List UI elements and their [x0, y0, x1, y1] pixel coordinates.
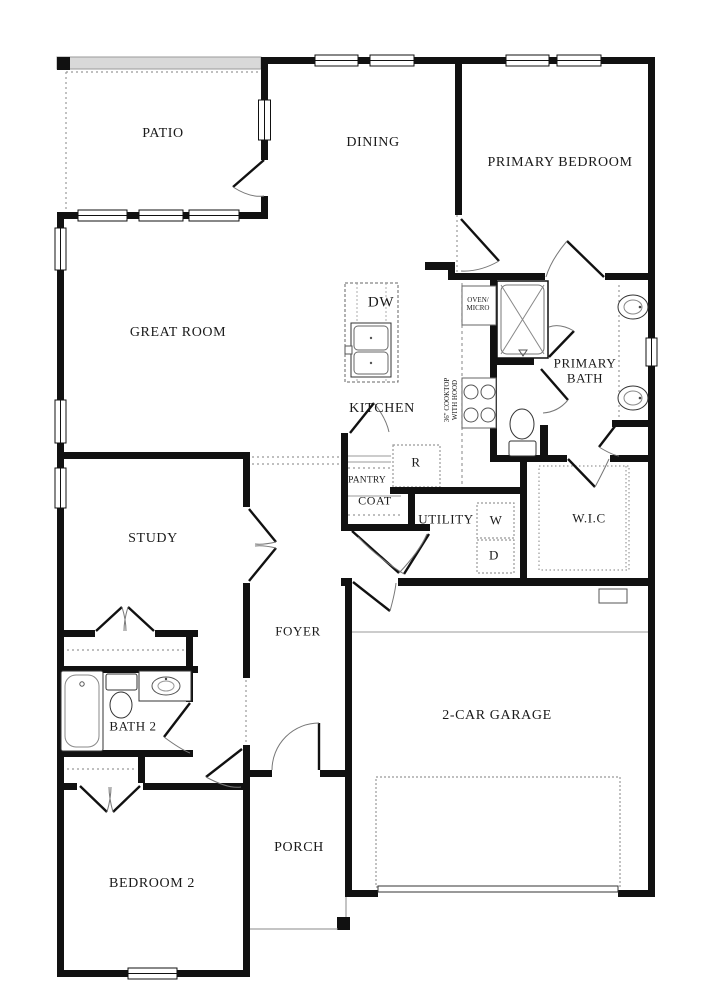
bath2-toilet: [106, 674, 137, 718]
patio-screen-band: [57, 57, 261, 70]
water-heater: [599, 589, 627, 603]
appliance-label-refrigerator: R: [411, 456, 420, 471]
appliance-label-dryer: D: [489, 549, 499, 564]
walls: [57, 57, 655, 977]
room-label-garage: 2-CAR GARAGE: [442, 708, 551, 724]
floor-plan: PATIO DINING PRIMARY BEDROOM GREAT ROOM …: [0, 0, 705, 1006]
shower: [497, 281, 548, 358]
room-label-coat: COAT: [358, 494, 392, 507]
appliance-label-oven-micro: OVEN/ MICRO: [467, 297, 490, 313]
room-label-porch: PORCH: [274, 840, 324, 856]
appliance-label-washer: W: [490, 514, 503, 529]
room-label-primary-bath: PRIMARY BATH: [554, 356, 617, 385]
room-label-utility: UTILITY: [418, 513, 473, 528]
garage-door: [378, 886, 618, 892]
bath2-vanity: [139, 671, 191, 701]
primary-toilet: [509, 409, 536, 456]
appliance-label-cooktop-note: 36" COOKTOP WITH HOOD: [444, 378, 460, 423]
appliance-label-dishwasher: DW: [368, 295, 394, 312]
room-label-bedroom-2: BEDROOM 2: [109, 876, 195, 892]
room-label-great-room: GREAT ROOM: [130, 325, 226, 341]
room-label-patio: PATIO: [142, 126, 183, 142]
room-label-foyer: FOYER: [275, 625, 321, 640]
room-label-study: STUDY: [128, 531, 178, 547]
room-label-pantry: PANTRY: [348, 476, 386, 487]
floorplan-drawing: [0, 0, 705, 1006]
room-label-dining: DINING: [346, 135, 399, 151]
room-label-wic: W.I.C: [572, 512, 606, 527]
vanity-sinks: [618, 295, 648, 410]
room-label-primary-bedroom: PRIMARY BEDROOM: [488, 155, 633, 171]
room-label-bath-2: BATH 2: [109, 720, 156, 735]
bathtub: [61, 671, 103, 751]
windows: [55, 55, 657, 979]
room-label-kitchen: KITCHEN: [349, 401, 415, 417]
porch-slab-edge: [250, 897, 346, 929]
